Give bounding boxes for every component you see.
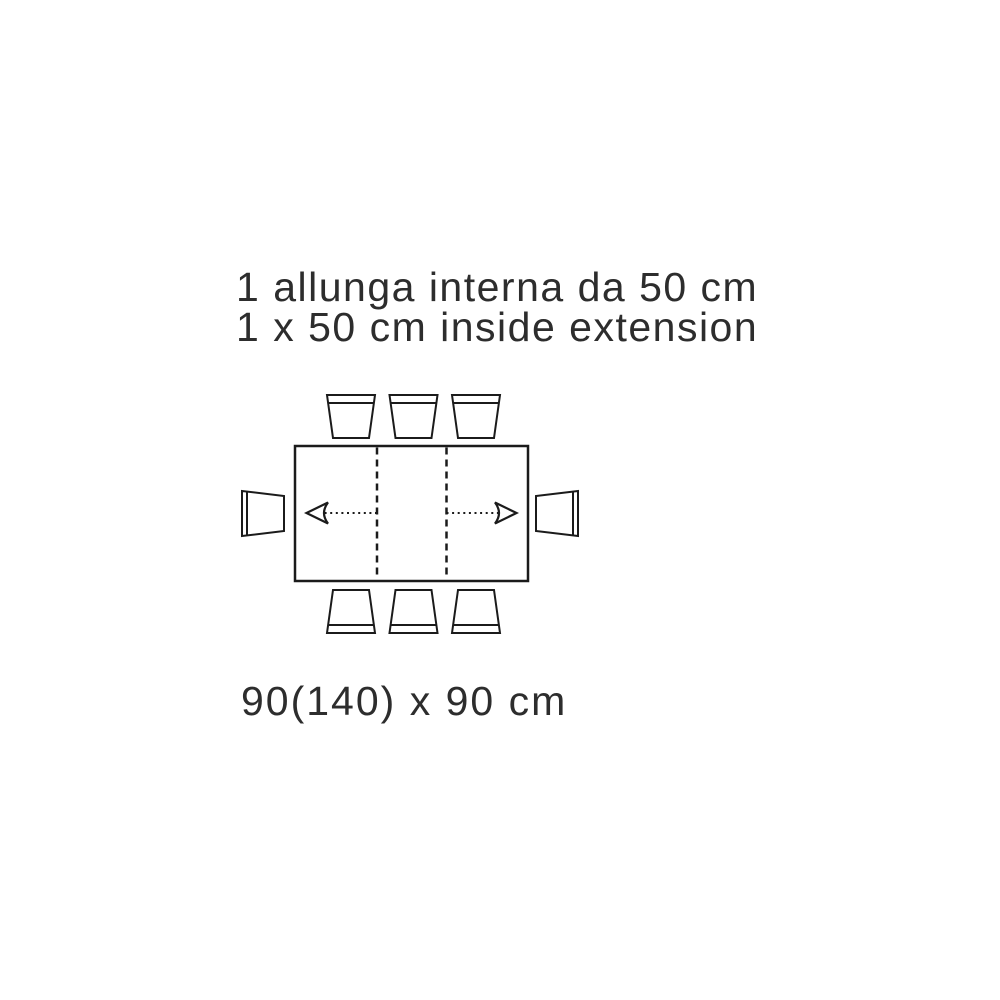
chair-top-1 xyxy=(327,395,375,438)
chair-left-seat xyxy=(242,491,284,536)
chair-right-seat xyxy=(536,491,578,536)
arrow-left-head-icon xyxy=(307,503,329,524)
chair-bottom-3-seat xyxy=(452,590,500,633)
table-plan-diagram xyxy=(230,385,590,645)
arrow-right xyxy=(447,503,517,524)
chair-bottom-3 xyxy=(452,590,500,633)
chair-bottom-2-seat xyxy=(390,590,438,633)
caption: 1 allunga interna da 50 cm 1 x 50 cm ins… xyxy=(236,267,758,347)
caption-line-english: 1 x 50 cm inside extension xyxy=(236,307,758,347)
page: 1 allunga interna da 50 cm 1 x 50 cm ins… xyxy=(0,0,1000,1000)
dimension-label: 90(140) x 90 cm xyxy=(241,681,567,721)
chair-top-1-seat xyxy=(327,395,375,438)
chair-left xyxy=(242,491,284,536)
chair-bottom-1 xyxy=(327,590,375,633)
chair-top-3 xyxy=(452,395,500,438)
chair-top-2 xyxy=(390,395,438,438)
chair-top-2-seat xyxy=(390,395,438,438)
chair-right xyxy=(536,491,578,536)
chair-top-3-seat xyxy=(452,395,500,438)
chair-bottom-2 xyxy=(390,590,438,633)
caption-line-italian: 1 allunga interna da 50 cm xyxy=(236,267,758,307)
arrow-left xyxy=(307,503,378,524)
arrow-right-head-icon xyxy=(495,503,517,524)
chair-bottom-1-seat xyxy=(327,590,375,633)
